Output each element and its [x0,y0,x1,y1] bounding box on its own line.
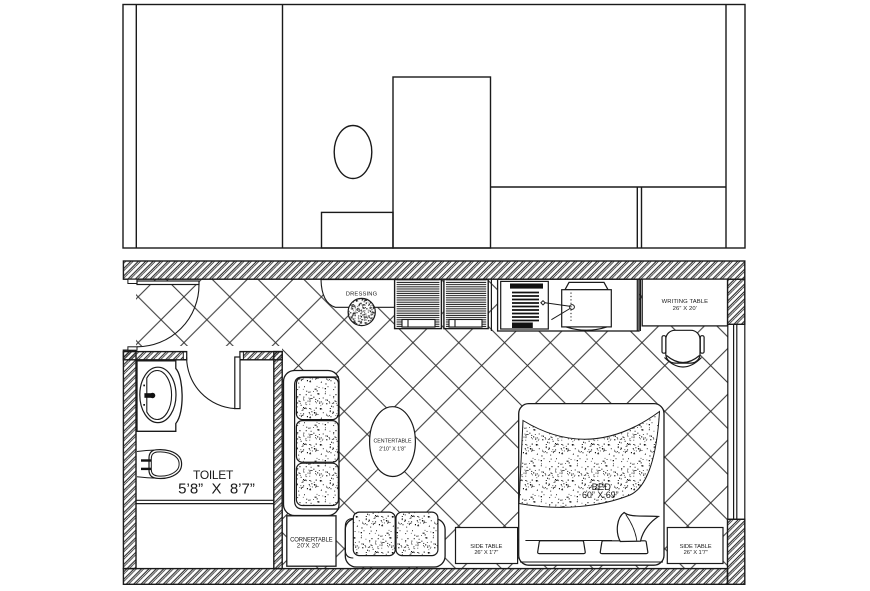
svg-text:WRITING TABLE: WRITING TABLE [662,299,709,305]
svg-text:SIDE TABLE: SIDE TABLE [470,544,502,550]
svg-text:5’8” X 8’7”: 5’8” X 8’7” [178,481,255,498]
svg-text:26” X 1'7”: 26” X 1'7” [684,550,708,556]
svg-text:2'10” X 1'8”: 2'10” X 1'8” [379,447,406,453]
svg-text:SIDE TABLE: SIDE TABLE [680,544,712,550]
svg-text:DRESSING: DRESSING [346,291,378,297]
svg-text:20'X 20': 20'X 20' [297,543,321,550]
svg-text:CENTERTABLE: CENTERTABLE [373,438,412,444]
svg-text:26” X 1'7”: 26” X 1'7” [474,550,498,556]
svg-text:60” X 69”: 60” X 69” [582,490,619,500]
svg-text:26” X 20’: 26” X 20’ [673,306,697,312]
